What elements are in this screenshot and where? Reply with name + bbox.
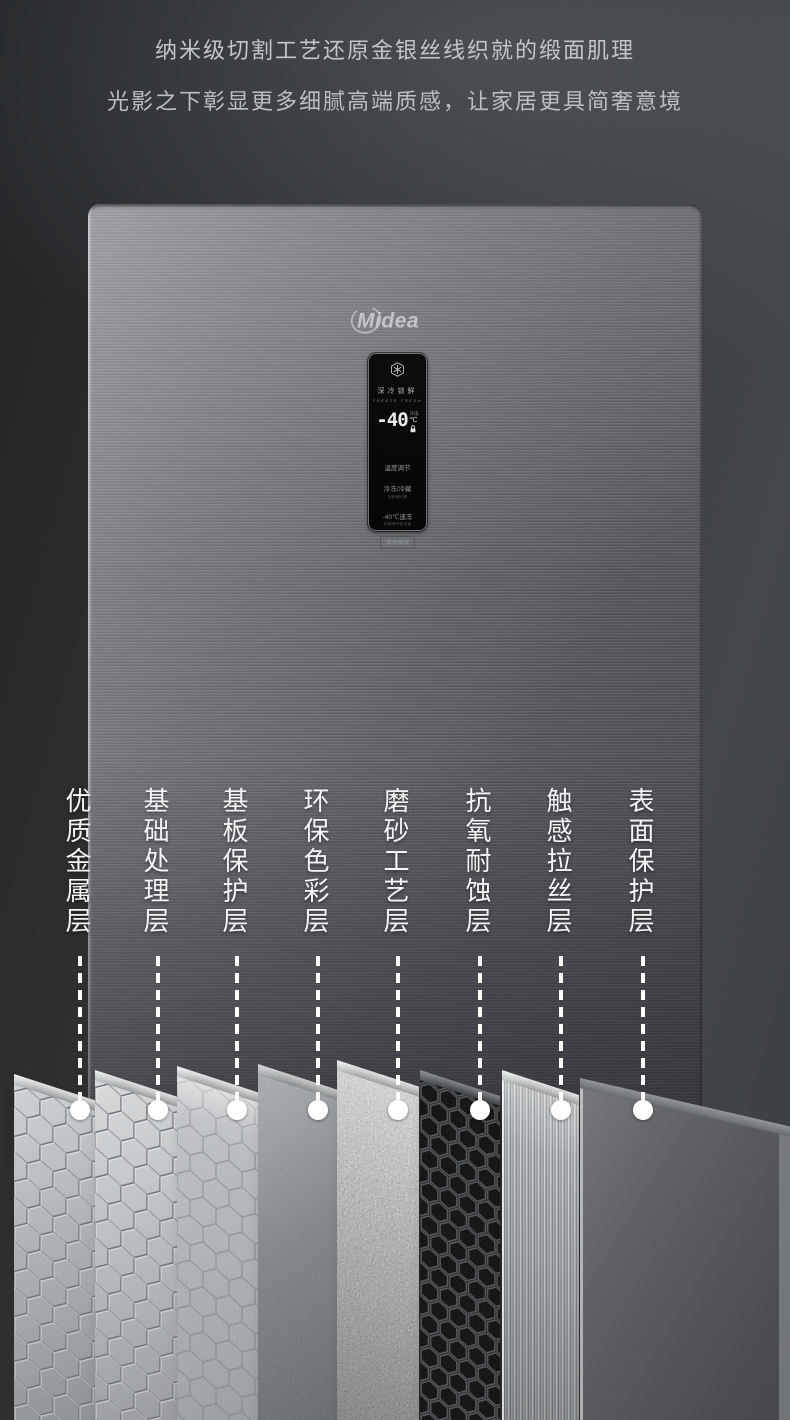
snowflake-hexagon-icon bbox=[390, 362, 405, 382]
midea-logo: Midea bbox=[350, 304, 446, 336]
leader-dot bbox=[70, 1100, 90, 1120]
logo-text: Midea bbox=[357, 310, 419, 333]
temperature-unit: ℃ bbox=[410, 417, 418, 425]
leader-dot bbox=[308, 1100, 328, 1120]
layer-panel-quality-metal bbox=[14, 1074, 98, 1420]
leader-line bbox=[316, 956, 320, 1102]
leader-dot bbox=[388, 1100, 408, 1120]
leader-dot bbox=[551, 1100, 571, 1120]
leader-line bbox=[641, 956, 645, 1102]
smooth-dark-surface bbox=[580, 1088, 790, 1420]
matte-texture bbox=[258, 1074, 337, 1420]
layer-label-quality-metal: 优质金属层 bbox=[64, 787, 96, 955]
layer-label-substrate-protection: 基板保护层 bbox=[221, 787, 253, 955]
layer-label-surface-protection: 表面保护层 bbox=[627, 787, 659, 955]
headline-line1: 纳米级切割工艺还原金银丝线织就的缎面肌理 bbox=[0, 33, 790, 65]
leader-dot bbox=[470, 1100, 490, 1120]
lock-icon bbox=[410, 425, 416, 433]
fridge-door: Midea 深冷锁鲜 FREEZE FRESH -40 冷冻 ℃ bbox=[88, 204, 702, 1160]
leader-line bbox=[78, 956, 82, 1102]
honeycomb-texture bbox=[14, 1084, 98, 1420]
display-feature-subtitle: FREEZE FRESH bbox=[373, 398, 423, 403]
layer-panel-substrate-protection bbox=[177, 1066, 258, 1420]
display-lock-button: 按3秒解锁 bbox=[380, 536, 415, 549]
leader-dot bbox=[633, 1100, 653, 1120]
brushed-stripe-texture bbox=[502, 1080, 579, 1420]
dark-mesh-texture bbox=[420, 1080, 500, 1420]
layer-panel-brushed-touch bbox=[502, 1070, 579, 1420]
layer-label-anti-oxidation: 抗氧耐蚀层 bbox=[464, 787, 496, 955]
layer-label-eco-color: 环保色彩层 bbox=[302, 787, 334, 955]
layer-panel-eco-color bbox=[258, 1064, 337, 1420]
honeycomb-texture bbox=[95, 1080, 180, 1420]
leader-line bbox=[478, 956, 482, 1102]
display-control-temp-adjust: 温度调节 bbox=[384, 462, 410, 472]
honeycomb-glass-texture bbox=[177, 1076, 258, 1420]
leader-dot bbox=[148, 1100, 168, 1120]
display-control-freeze-fridge-hint: 长按3秒切换 bbox=[388, 495, 407, 500]
leader-dot bbox=[227, 1100, 247, 1120]
temperature-readout: -40 冷冻 ℃ bbox=[376, 411, 418, 433]
leader-line bbox=[559, 956, 563, 1102]
sparkle-texture bbox=[337, 1070, 419, 1420]
leader-line bbox=[156, 956, 160, 1102]
display-control-freeze-fridge: 冷冻/冷藏 bbox=[384, 483, 412, 493]
leader-line bbox=[396, 956, 400, 1102]
display-control-quick-freeze: -40℃速冻 bbox=[383, 511, 413, 521]
layer-label-brushed-touch: 触感拉丝层 bbox=[545, 787, 577, 955]
layer-label-frosted-finish: 磨砂工艺层 bbox=[382, 787, 414, 955]
fridge-display-panel: 深冷锁鲜 FREEZE FRESH -40 冷冻 ℃ 温度调节 冷冻/冷藏 长按… bbox=[368, 353, 427, 531]
layer-panel-surface-protection bbox=[580, 1078, 790, 1420]
display-control-quick-freeze-hint: 长按3秒开启/关闭 bbox=[384, 522, 411, 527]
leader-line bbox=[235, 956, 239, 1102]
display-feature-title: 深冷锁鲜 bbox=[378, 386, 418, 396]
headline-line2: 光影之下彰显更多细腻高端质感，让家居更具简奢意境 bbox=[0, 84, 790, 116]
layer-panel-anti-oxidation bbox=[420, 1070, 500, 1420]
layer-panel-base-treatment bbox=[95, 1070, 180, 1420]
layer-label-base-treatment: 基础处理层 bbox=[142, 787, 174, 955]
product-detail-section: 纳米级切割工艺还原金银丝线织就的缎面肌理 光影之下彰显更多细腻高端质感，让家居更… bbox=[0, 0, 790, 1420]
temperature-value: -40 bbox=[376, 411, 407, 430]
